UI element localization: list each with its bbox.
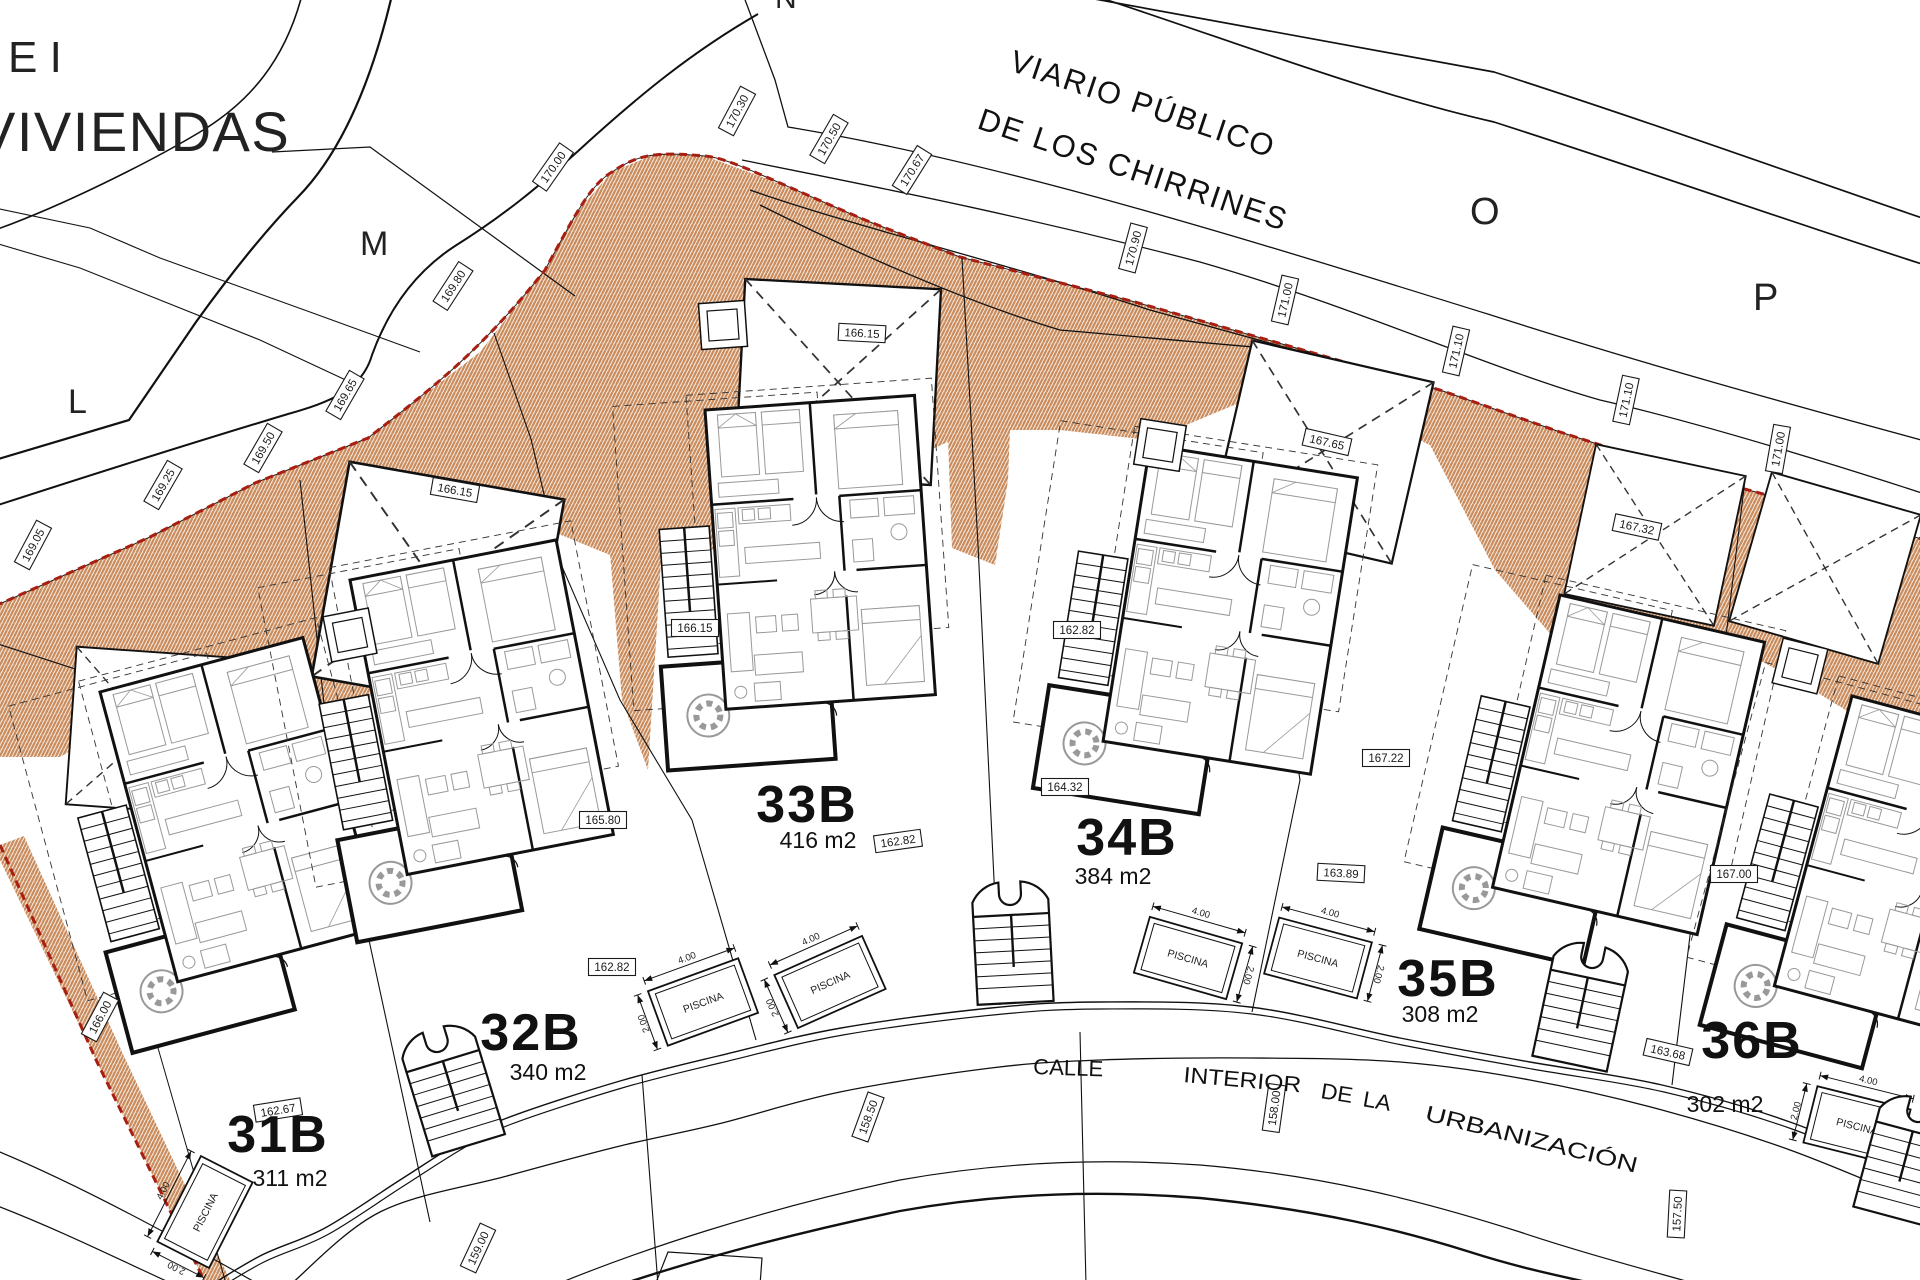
svg-text:L: L bbox=[68, 383, 87, 421]
svg-text:163.89: 163.89 bbox=[1323, 867, 1359, 881]
svg-text:VIVIENDAS: VIVIENDAS bbox=[0, 100, 290, 163]
svg-text:E I: E I bbox=[8, 33, 62, 82]
svg-text:INTERIOR: INTERIOR bbox=[1183, 1062, 1303, 1097]
svg-text:DE: DE bbox=[1319, 1078, 1355, 1108]
svg-text:31B: 31B bbox=[227, 1106, 328, 1164]
svg-text:M: M bbox=[360, 225, 388, 263]
svg-text:166.15: 166.15 bbox=[844, 327, 880, 341]
svg-text:384 m2: 384 m2 bbox=[1075, 863, 1152, 889]
svg-text:167.22: 167.22 bbox=[1368, 753, 1403, 765]
svg-text:157.50: 157.50 bbox=[1671, 1196, 1685, 1232]
svg-text:416 m2: 416 m2 bbox=[780, 827, 857, 853]
svg-text:P: P bbox=[1753, 277, 1778, 319]
svg-text:166.15: 166.15 bbox=[677, 623, 712, 635]
svg-text:311 m2: 311 m2 bbox=[252, 1165, 327, 1191]
svg-text:33B: 33B bbox=[756, 776, 857, 834]
svg-text:162.82: 162.82 bbox=[594, 962, 629, 974]
svg-text:308 m2: 308 m2 bbox=[1402, 1001, 1479, 1027]
svg-text:302 m2: 302 m2 bbox=[1687, 1091, 1764, 1117]
svg-text:35B: 35B bbox=[1397, 950, 1498, 1008]
svg-text:URBANIZACIÓN: URBANIZACIÓN bbox=[1423, 1101, 1641, 1178]
svg-text:O: O bbox=[1470, 191, 1500, 233]
svg-text:162.82: 162.82 bbox=[1059, 625, 1094, 637]
svg-text:N: N bbox=[775, 0, 797, 15]
svg-text:LA: LA bbox=[1361, 1086, 1393, 1116]
svg-text:32B: 32B bbox=[480, 1004, 581, 1062]
svg-text:167.00: 167.00 bbox=[1716, 869, 1751, 881]
svg-text:36B: 36B bbox=[1701, 1012, 1802, 1070]
svg-text:CALLE: CALLE bbox=[1033, 1054, 1104, 1081]
svg-text:34B: 34B bbox=[1076, 809, 1177, 867]
svg-text:164.32: 164.32 bbox=[1047, 782, 1082, 794]
svg-text:340 m2: 340 m2 bbox=[510, 1059, 587, 1085]
svg-text:165.80: 165.80 bbox=[585, 815, 620, 827]
